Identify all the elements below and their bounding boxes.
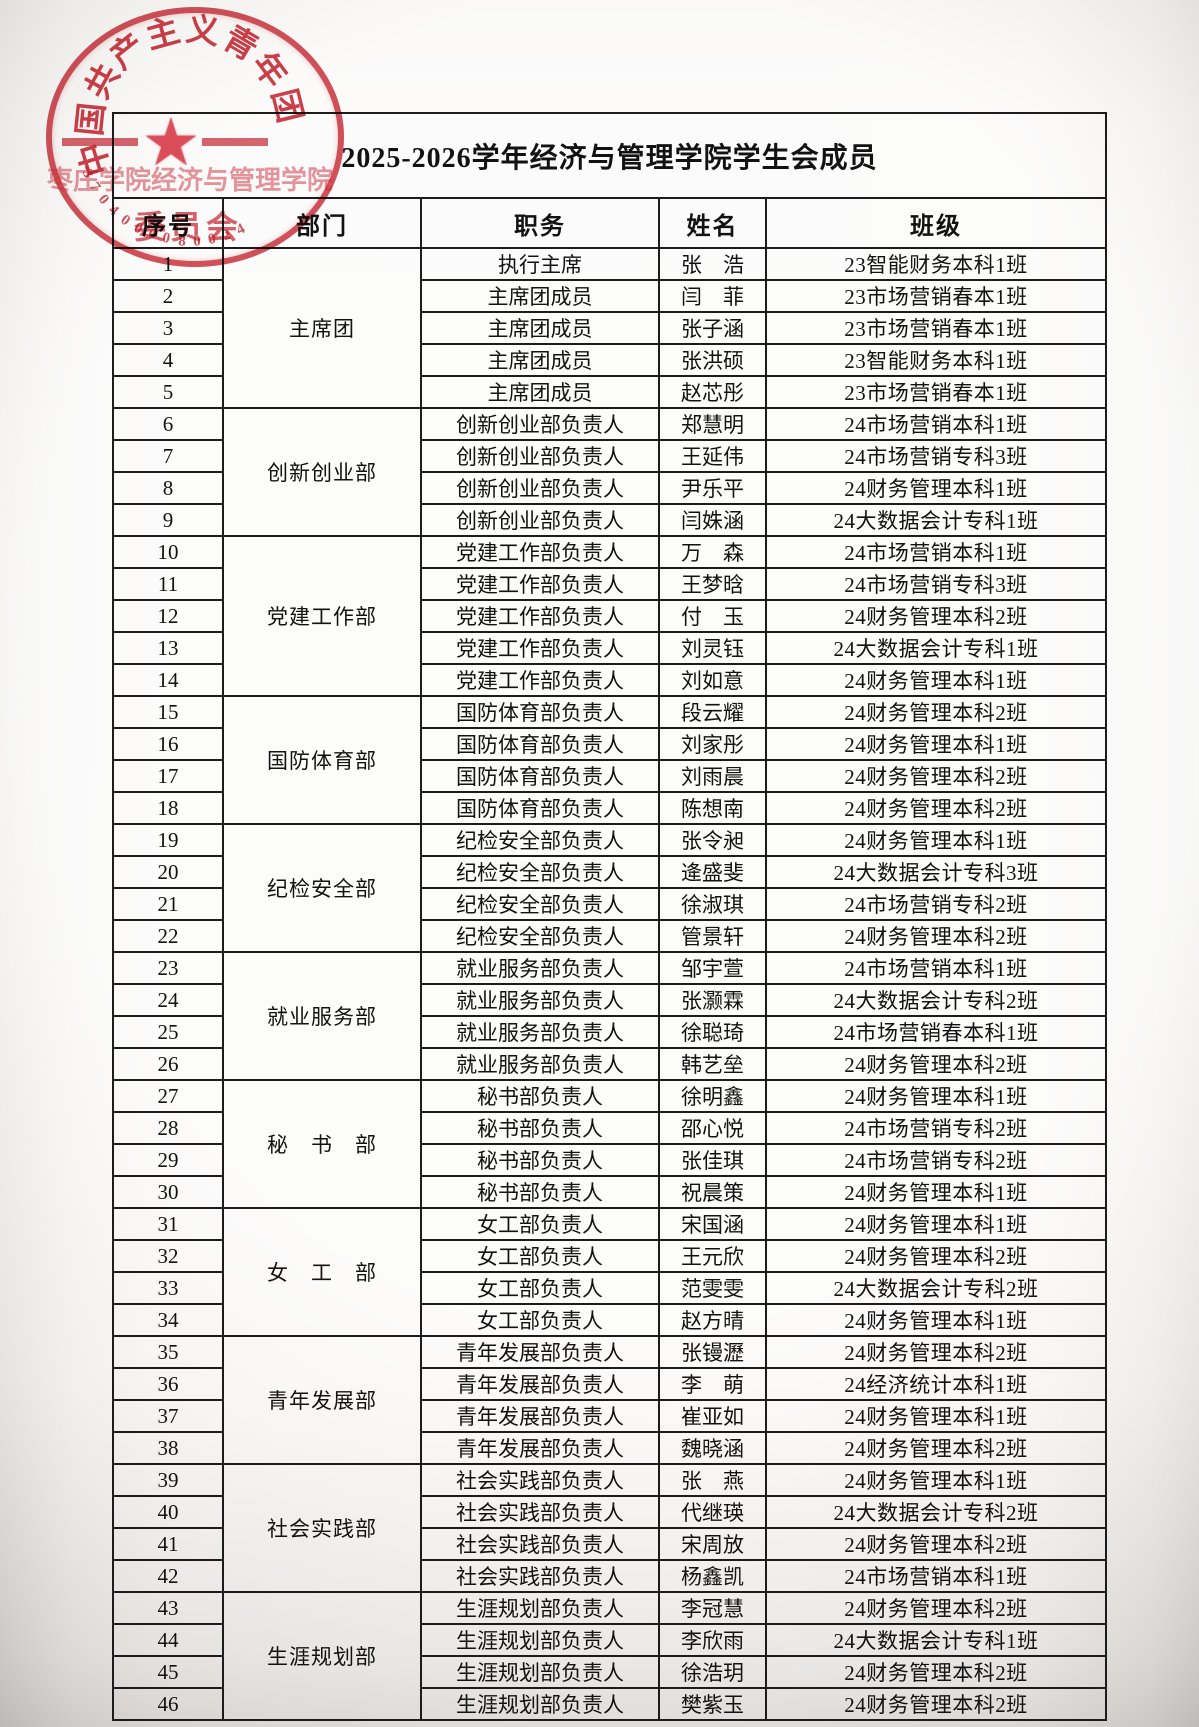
serial-cell: 45 [113,1656,223,1688]
serial-cell: 44 [113,1624,223,1656]
document-photo: 2025-2026学年经济与管理学院学生会成员 序号 部门 职务 姓名 班级 1… [0,0,1199,1727]
position-cell: 就业服务部负责人 [421,1016,659,1048]
position-cell: 青年发展部负责人 [421,1368,659,1400]
position-cell: 就业服务部负责人 [421,952,659,984]
name-cell: 祝晨策 [659,1176,766,1208]
name-cell: 王元欣 [659,1240,766,1272]
position-cell: 就业服务部负责人 [421,984,659,1016]
stamp-arc-char: 义 [184,2,223,54]
serial-cell: 46 [113,1688,223,1720]
dept-cell: 主席团 [223,248,421,408]
name-cell: 李 萌 [659,1368,766,1400]
serial-cell: 39 [113,1464,223,1496]
serial-cell: 3 [113,312,223,344]
position-cell: 国防体育部负责人 [421,696,659,728]
position-cell: 党建工作部负责人 [421,600,659,632]
serial-cell: 40 [113,1496,223,1528]
name-cell: 刘家彤 [659,728,766,760]
roster-body: 1主席团执行主席张 浩23智能财务本科1班2主席团成员闫 菲23市场营销春本1班… [113,248,1106,1720]
position-cell: 纪检安全部负责人 [421,824,659,856]
serial-cell: 2 [113,280,223,312]
name-cell: 李冠慧 [659,1592,766,1624]
class-cell: 24财务管理本科2班 [766,1432,1106,1464]
dept-cell: 青年发展部 [223,1336,421,1464]
serial-cell: 31 [113,1208,223,1240]
stamp-arc-char: 产 [98,20,154,78]
class-cell: 24市场营销专科3班 [766,440,1106,472]
table-row: 1主席团执行主席张 浩23智能财务本科1班 [113,248,1106,280]
class-cell: 23市场营销春本1班 [766,376,1106,408]
name-cell: 闫姝涵 [659,504,766,536]
name-cell: 郑慧明 [659,408,766,440]
position-cell: 女工部负责人 [421,1240,659,1272]
class-cell: 24财务管理本科1班 [766,664,1106,696]
stamp-arc-char: 3 [78,167,97,181]
dept-cell: 秘 书 部 [223,1080,421,1208]
name-cell: 代继瑛 [659,1496,766,1528]
serial-cell: 35 [113,1336,223,1368]
name-cell: 樊紫玉 [659,1688,766,1720]
position-cell: 青年发展部负责人 [421,1432,659,1464]
position-cell: 纪检安全部负责人 [421,856,659,888]
serial-cell: 8 [113,472,223,504]
name-cell: 徐聪琦 [659,1016,766,1048]
serial-cell: 38 [113,1432,223,1464]
name-cell: 张佳琪 [659,1144,766,1176]
page-title: 2025-2026学年经济与管理学院学生会成员 [113,113,1106,198]
stamp-arc-char: 0 [94,192,112,208]
serial-cell: 4 [113,344,223,376]
position-cell: 秘书部负责人 [421,1112,659,1144]
name-cell: 徐浩玥 [659,1656,766,1688]
class-cell: 24市场营销本科1班 [766,1560,1106,1592]
table-row: 39社会实践部社会实践部负责人张 燕24财务管理本科1班 [113,1464,1106,1496]
class-cell: 24财务管理本科2班 [766,1048,1106,1080]
table-row: 31女 工 部女工部负责人宋国涵24财务管理本科1班 [113,1208,1106,1240]
name-cell: 杨鑫凯 [659,1560,766,1592]
serial-cell: 9 [113,504,223,536]
position-cell: 纪检安全部负责人 [421,888,659,920]
position-cell: 生涯规划部负责人 [421,1592,659,1624]
name-cell: 宋国涵 [659,1208,766,1240]
name-cell: 李欣雨 [659,1624,766,1656]
class-cell: 24市场营销专科2班 [766,1144,1106,1176]
name-cell: 闫 菲 [659,280,766,312]
serial-cell: 12 [113,600,223,632]
name-cell: 宋周放 [659,1528,766,1560]
class-cell: 24财务管理本科2班 [766,760,1106,792]
position-cell: 纪检安全部负责人 [421,920,659,952]
name-cell: 魏晓涵 [659,1432,766,1464]
class-cell: 24财务管理本科1班 [766,1080,1106,1112]
class-cell: 24财务管理本科1班 [766,1176,1106,1208]
class-cell: 24市场营销春本科1班 [766,1016,1106,1048]
class-cell: 24财务管理本科2班 [766,1656,1106,1688]
stamp-arc-char: 共 [71,54,129,106]
class-cell: 24大数据会计专科2班 [766,1272,1106,1304]
name-cell: 韩艺垒 [659,1048,766,1080]
name-cell: 张灏霖 [659,984,766,1016]
serial-cell: 16 [113,728,223,760]
serial-cell: 29 [113,1144,223,1176]
class-cell: 24大数据会计专科1班 [766,504,1106,536]
name-cell: 刘灵钰 [659,632,766,664]
name-cell: 邹宇萱 [659,952,766,984]
col-header-position: 职务 [421,198,659,248]
serial-cell: 33 [113,1272,223,1304]
position-cell: 主席团成员 [421,376,659,408]
class-cell: 24市场营销专科2班 [766,888,1106,920]
class-cell: 24财务管理本科2班 [766,1592,1106,1624]
class-cell: 23市场营销春本1班 [766,312,1106,344]
serial-cell: 28 [113,1112,223,1144]
class-cell: 24市场营销专科3班 [766,568,1106,600]
serial-cell: 14 [113,664,223,696]
position-cell: 秘书部负责人 [421,1144,659,1176]
serial-cell: 19 [113,824,223,856]
class-cell: 24财务管理本科1班 [766,728,1106,760]
serial-cell: 27 [113,1080,223,1112]
table-row: 43生涯规划部生涯规划部负责人李冠慧24财务管理本科2班 [113,1592,1106,1624]
serial-cell: 7 [113,440,223,472]
position-cell: 主席团成员 [421,344,659,376]
position-cell: 创新创业部负责人 [421,440,659,472]
name-cell: 管景轩 [659,920,766,952]
serial-cell: 24 [113,984,223,1016]
dept-cell: 创新创业部 [223,408,421,536]
position-cell: 生涯规划部负责人 [421,1688,659,1720]
name-cell: 张洪硕 [659,344,766,376]
position-cell: 社会实践部负责人 [421,1528,659,1560]
class-cell: 24经济统计本科1班 [766,1368,1106,1400]
dept-cell: 就业服务部 [223,952,421,1080]
class-cell: 24财务管理本科1班 [766,1400,1106,1432]
position-cell: 执行主席 [421,248,659,280]
serial-cell: 11 [113,568,223,600]
class-cell: 23市场营销春本1班 [766,280,1106,312]
name-cell: 张 燕 [659,1464,766,1496]
position-cell: 党建工作部负责人 [421,632,659,664]
position-cell: 主席团成员 [421,312,659,344]
class-cell: 24大数据会计专科2班 [766,984,1106,1016]
class-cell: 24大数据会计专科1班 [766,632,1106,664]
class-cell: 24大数据会计专科3班 [766,856,1106,888]
position-cell: 秘书部负责人 [421,1080,659,1112]
position-cell: 党建工作部负责人 [421,536,659,568]
serial-cell: 6 [113,408,223,440]
class-cell: 24财务管理本科2班 [766,1240,1106,1272]
name-cell: 付 玉 [659,600,766,632]
dept-cell: 社会实践部 [223,1464,421,1592]
position-cell: 青年发展部负责人 [421,1336,659,1368]
position-cell: 党建工作部负责人 [421,664,659,696]
class-cell: 24财务管理本科1班 [766,472,1106,504]
class-cell: 24财务管理本科2班 [766,1688,1106,1720]
position-cell: 创新创业部负责人 [421,472,659,504]
class-cell: 24财务管理本科1班 [766,1208,1106,1240]
class-cell: 23智能财务本科1班 [766,248,1106,280]
name-cell: 赵方晴 [659,1304,766,1336]
name-cell: 陈想南 [659,792,766,824]
stamp-arc-char: 7 [85,180,103,195]
name-cell: 尹乐平 [659,472,766,504]
serial-cell: 5 [113,376,223,408]
position-cell: 创新创业部负责人 [421,504,659,536]
serial-cell: 15 [113,696,223,728]
serial-cell: 10 [113,536,223,568]
name-cell: 张 浩 [659,248,766,280]
table-row: 23就业服务部就业服务部负责人邹宇萱24市场营销本科1班 [113,952,1106,984]
position-cell: 社会实践部负责人 [421,1560,659,1592]
col-header-serial: 序号 [113,198,223,248]
class-cell: 24市场营销本科1班 [766,408,1106,440]
stamp-arc-char: 年 [243,41,301,96]
name-cell: 赵芯彤 [659,376,766,408]
name-cell: 段云耀 [659,696,766,728]
class-cell: 24大数据会计专科2班 [766,1496,1106,1528]
dept-cell: 纪检安全部 [223,824,421,952]
position-cell: 国防体育部负责人 [421,760,659,792]
class-cell: 24财务管理本科2班 [766,1336,1106,1368]
serial-cell: 34 [113,1304,223,1336]
table-row: 35青年发展部青年发展部负责人张镘瀝24财务管理本科2班 [113,1336,1106,1368]
table-row: 19纪检安全部纪检安全部负责人张令昶24财务管理本科1班 [113,824,1106,856]
position-cell: 生涯规划部负责人 [421,1656,659,1688]
position-cell: 女工部负责人 [421,1208,659,1240]
name-cell: 王延伟 [659,440,766,472]
name-cell: 徐淑琪 [659,888,766,920]
serial-cell: 32 [113,1240,223,1272]
stamp-arc-char: 主 [140,3,185,58]
position-cell: 创新创业部负责人 [421,408,659,440]
table-row: 10党建工作部党建工作部负责人万 森24市场营销本科1班 [113,536,1106,568]
serial-cell: 17 [113,760,223,792]
position-cell: 国防体育部负责人 [421,728,659,760]
serial-cell: 43 [113,1592,223,1624]
name-cell: 逄盛斐 [659,856,766,888]
name-cell: 张子涵 [659,312,766,344]
roster-table: 2025-2026学年经济与管理学院学生会成员 序号 部门 职务 姓名 班级 1… [112,112,1107,1721]
serial-cell: 18 [113,792,223,824]
serial-cell: 30 [113,1176,223,1208]
position-cell: 女工部负责人 [421,1272,659,1304]
table-title-row: 2025-2026学年经济与管理学院学生会成员 [113,113,1106,198]
serial-cell: 23 [113,952,223,984]
class-cell: 24大数据会计专科1班 [766,1624,1106,1656]
class-cell: 24财务管理本科1班 [766,1464,1106,1496]
serial-cell: 41 [113,1528,223,1560]
position-cell: 就业服务部负责人 [421,1048,659,1080]
position-cell: 党建工作部负责人 [421,568,659,600]
class-cell: 24财务管理本科2班 [766,600,1106,632]
dept-cell: 女 工 部 [223,1208,421,1336]
name-cell: 邵心悦 [659,1112,766,1144]
class-cell: 24财务管理本科1班 [766,824,1106,856]
class-cell: 24市场营销专科2班 [766,1112,1106,1144]
name-cell: 徐明鑫 [659,1080,766,1112]
name-cell: 刘如意 [659,664,766,696]
position-cell: 秘书部负责人 [421,1176,659,1208]
class-cell: 24财务管理本科2班 [766,792,1106,824]
serial-cell: 21 [113,888,223,920]
stamp-arc-char: 青 [216,12,269,70]
name-cell: 万 森 [659,536,766,568]
name-cell: 崔亚如 [659,1400,766,1432]
table-row: 6创新创业部创新创业部负责人郑慧明24市场营销本科1班 [113,408,1106,440]
position-cell: 国防体育部负责人 [421,792,659,824]
table-row: 27秘 书 部秘书部负责人徐明鑫24财务管理本科1班 [113,1080,1106,1112]
name-cell: 张镘瀝 [659,1336,766,1368]
position-cell: 社会实践部负责人 [421,1464,659,1496]
class-cell: 23智能财务本科1班 [766,344,1106,376]
stamp-arc-char: 国 [62,101,113,139]
serial-cell: 37 [113,1400,223,1432]
class-cell: 24市场营销本科1班 [766,952,1106,984]
table-row: 15国防体育部国防体育部负责人段云耀24财务管理本科2班 [113,696,1106,728]
dept-cell: 国防体育部 [223,696,421,824]
name-cell: 范雯雯 [659,1272,766,1304]
col-header-name: 姓名 [659,198,766,248]
position-cell: 女工部负责人 [421,1304,659,1336]
serial-cell: 26 [113,1048,223,1080]
position-cell: 生涯规划部负责人 [421,1624,659,1656]
class-cell: 24财务管理本科2班 [766,696,1106,728]
position-cell: 青年发展部负责人 [421,1400,659,1432]
serial-cell: 42 [113,1560,223,1592]
name-cell: 张令昶 [659,824,766,856]
class-cell: 24财务管理本科2班 [766,1528,1106,1560]
table-header-row: 序号 部门 职务 姓名 班级 [113,198,1106,248]
serial-cell: 13 [113,632,223,664]
serial-cell: 22 [113,920,223,952]
position-cell: 社会实践部负责人 [421,1496,659,1528]
col-header-class: 班级 [766,198,1106,248]
col-header-dept: 部门 [223,198,421,248]
dept-cell: 生涯规划部 [223,1592,421,1720]
class-cell: 24财务管理本科1班 [766,1304,1106,1336]
serial-cell: 36 [113,1368,223,1400]
serial-cell: 20 [113,856,223,888]
class-cell: 24财务管理本科2班 [766,920,1106,952]
position-cell: 主席团成员 [421,280,659,312]
dept-cell: 党建工作部 [223,536,421,696]
serial-cell: 25 [113,1016,223,1048]
stamp-arc-char: 中 [64,137,120,183]
serial-cell: 1 [113,248,223,280]
class-cell: 24市场营销本科1班 [766,536,1106,568]
name-cell: 刘雨晨 [659,760,766,792]
name-cell: 王梦晗 [659,568,766,600]
